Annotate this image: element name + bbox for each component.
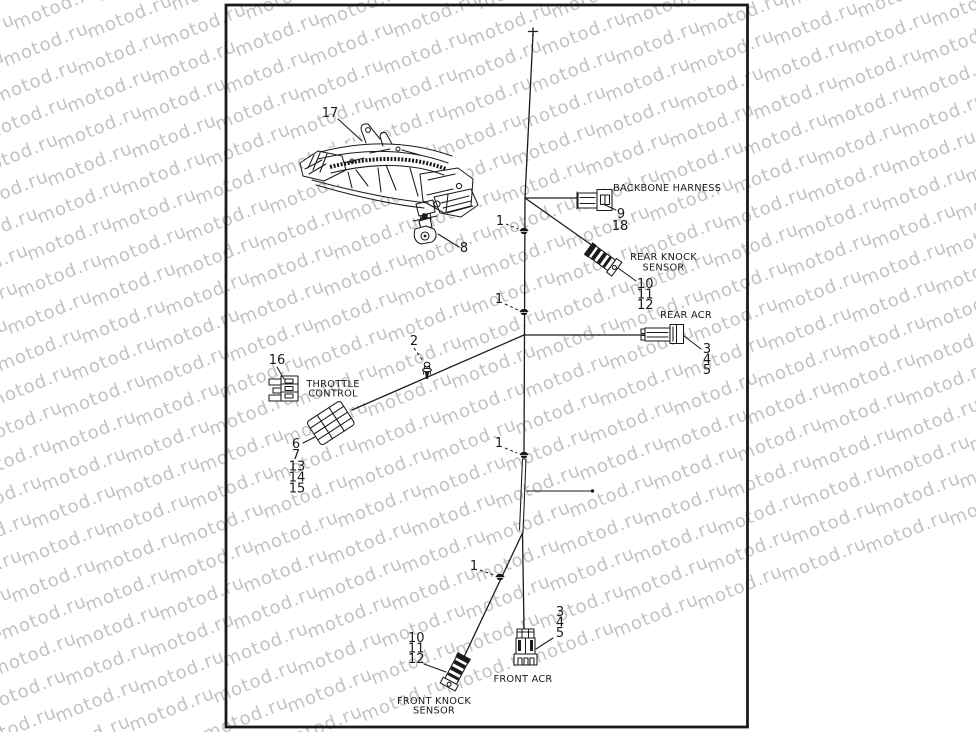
- rear-acr-connector: [641, 325, 701, 350]
- push-pin: 2: [410, 334, 432, 379]
- part-number: 15: [289, 482, 306, 497]
- leader-clamp: [438, 234, 459, 247]
- part-number-clamp: 8: [460, 241, 468, 256]
- throttle-control-connector: [306, 400, 355, 445]
- rear-knock-sensor: [583, 241, 622, 276]
- clip-upper: 1: [495, 292, 529, 315]
- part-number: 18: [612, 219, 629, 234]
- part-number: 12: [637, 298, 654, 313]
- part-number-clip: 1: [495, 436, 503, 451]
- frame-bracket: [300, 123, 478, 221]
- diagram-border: [226, 5, 748, 727]
- label-rear-acr: REAR ACR: [660, 310, 712, 321]
- front-acr-connector: [514, 629, 553, 665]
- clip-lower: 1: [470, 559, 505, 580]
- part-number-clip: 1: [470, 559, 478, 574]
- harness-lines: [352, 28, 645, 657]
- part-number-throttle-connector: 16: [269, 353, 286, 368]
- label-front-knock-sensor: SENSOR: [413, 706, 455, 717]
- leader-front-knock: [424, 664, 446, 672]
- cable-clamp: [414, 213, 436, 244]
- label-rear-knock-sensor: REAR KNOCK: [630, 252, 697, 263]
- label-throttle-control: CONTROL: [308, 389, 358, 400]
- label-backbone-harness: BACKBONE HARNESS: [613, 183, 721, 194]
- leader-bracket: [338, 119, 362, 141]
- backbone-harness-connector: [577, 190, 616, 211]
- label-front-acr: FRONT ACR: [493, 674, 552, 685]
- part-number-pin: 2: [410, 334, 418, 349]
- clip-top: 1: [496, 214, 529, 234]
- part-number: 5: [703, 363, 711, 378]
- label-rear-knock-sensor: SENSOR: [643, 263, 685, 274]
- leader-throttle: [303, 437, 315, 443]
- part-number: 5: [556, 626, 564, 641]
- part-number-clip: 1: [496, 214, 504, 229]
- throttle-connector-16: [269, 367, 298, 401]
- part-number-clip: 1: [495, 292, 503, 307]
- part-number-bracket: 17: [322, 106, 339, 121]
- part-number: 12: [408, 652, 425, 667]
- parts-diagram: 17 8 1 1 1 1: [0, 0, 976, 732]
